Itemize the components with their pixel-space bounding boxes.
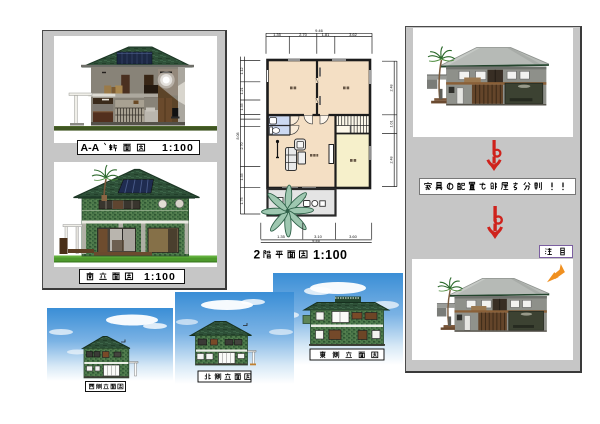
svg-text:1.75: 1.75 [240,198,244,205]
svg-text:1.35: 1.35 [277,234,286,239]
svg-text:1.12: 1.12 [240,68,244,75]
svg-text:2.48: 2.48 [390,85,394,92]
svg-text:2: 2 [254,248,261,262]
svg-text:8.08: 8.08 [236,133,240,140]
svg-text:1.01: 1.01 [390,121,394,128]
svg-text:9.46: 9.46 [312,238,321,243]
svg-text:1.21: 1.21 [240,88,244,95]
svg-text:1:100: 1:100 [144,271,176,282]
svg-text:1:100: 1:100 [162,142,194,153]
svg-text:1.35: 1.35 [240,104,244,111]
svg-text:3.62: 3.62 [349,32,358,37]
svg-text:1.35: 1.35 [273,32,282,37]
svg-text:1.35: 1.35 [240,174,244,181]
svg-text:2.70: 2.70 [299,32,308,37]
svg-text:2.70: 2.70 [240,143,244,150]
svg-text:3.60: 3.60 [349,234,358,239]
svg-text:1:100: 1:100 [313,248,347,262]
svg-text:A-A: A-A [81,142,100,153]
svg-text:2.48: 2.48 [390,157,394,164]
svg-text:1.81: 1.81 [322,32,331,37]
